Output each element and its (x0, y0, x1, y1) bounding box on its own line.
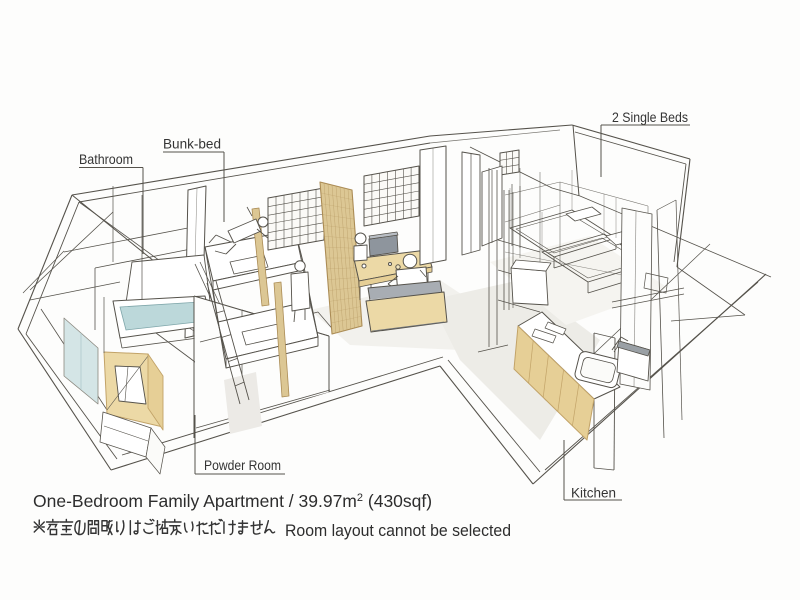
svg-text:Powder Room: Powder Room (204, 457, 281, 473)
svg-text:Bunk-bed: Bunk-bed (163, 136, 221, 152)
svg-text:Bathroom: Bathroom (79, 151, 133, 167)
svg-text:Kitchen: Kitchen (571, 485, 616, 501)
svg-text:One-Bedroom Family Apartment /: One-Bedroom Family Apartment / 39.97m2 (… (33, 491, 432, 511)
svg-text:2 Single Beds: 2 Single Beds (612, 109, 688, 125)
svg-text:Room layout cannot be selected: Room layout cannot be selected (285, 521, 511, 540)
